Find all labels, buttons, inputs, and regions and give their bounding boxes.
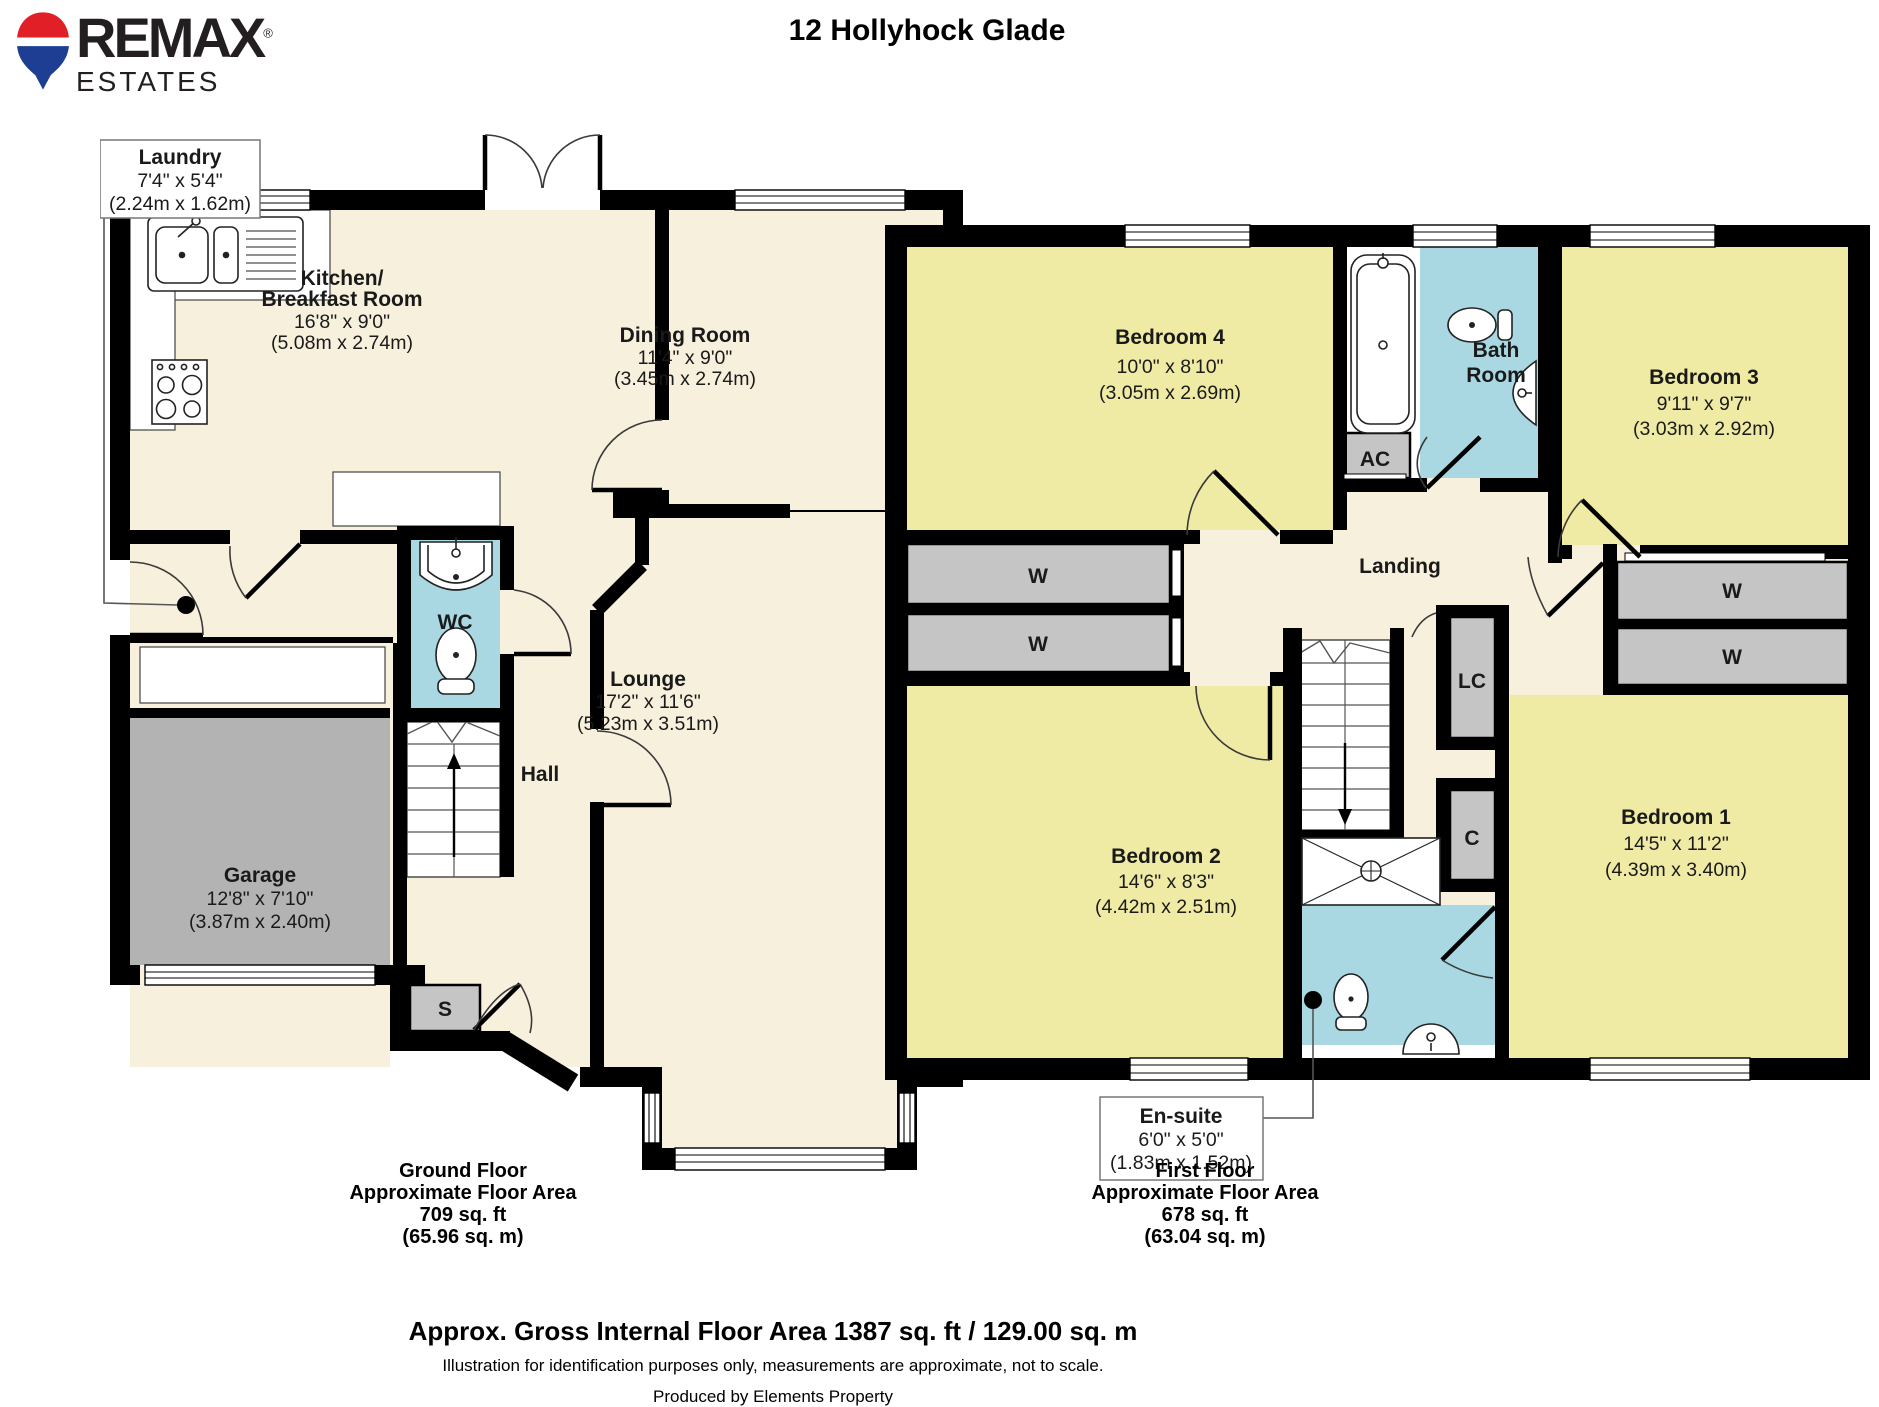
gf-bay-window xyxy=(675,1148,885,1170)
cupboard-c-label: C xyxy=(1464,827,1479,850)
landing-label: Landing xyxy=(1359,555,1441,578)
remax-logo: REMAX® ESTATES xyxy=(14,10,273,96)
gf-garage-door xyxy=(145,965,375,985)
gf-utility-counter xyxy=(140,647,385,703)
svg-text:(5.23m x 3.51m): (5.23m x 3.51m) xyxy=(577,713,719,735)
garage-label: Garage xyxy=(224,864,296,887)
wardrobe-label-1: W xyxy=(1028,565,1048,588)
laundry-metric: (2.24m x 1.62m) xyxy=(109,193,251,215)
ensuite-counter xyxy=(1302,1045,1495,1058)
svg-text:11'4" x 9'0": 11'4" x 9'0" xyxy=(638,347,733,369)
ff-bedroom2-floor xyxy=(907,686,1283,1058)
bedroom4-label: Bedroom 4 xyxy=(1115,326,1225,349)
floorplan-page: { "header": { "brand": "REMAX", "registe… xyxy=(0,0,1879,1400)
svg-text:(5.08m x 2.74m): (5.08m x 2.74m) xyxy=(271,332,413,354)
laundry-dims: 7'4" x 5'4" xyxy=(137,170,222,192)
ensuite-dims: 6'0" x 5'0" xyxy=(1138,1129,1223,1151)
wc-label: WC xyxy=(438,611,473,634)
svg-text:(3.87m x 2.40m): (3.87m x 2.40m) xyxy=(189,911,331,933)
ff-bathroom-floor xyxy=(1420,247,1538,478)
page-footer: Approx. Gross Internal Floor Area 1387 s… xyxy=(273,1316,1273,1407)
gf-stairs xyxy=(407,720,500,877)
bedroom2-label: Bedroom 2 xyxy=(1111,845,1221,868)
wc-basin-icon xyxy=(420,537,492,590)
ff-bedroom1-window xyxy=(1590,1058,1750,1080)
wc-toilet-icon xyxy=(436,628,476,694)
svg-text:12'8" x 7'10": 12'8" x 7'10" xyxy=(207,888,314,910)
gf-entrance-door-arc-right xyxy=(543,135,600,188)
svg-text:Breakfast Room: Breakfast Room xyxy=(261,288,422,311)
bedroom1-label: Bedroom 1 xyxy=(1621,806,1731,829)
svg-text:10'0" x 8'10": 10'0" x 8'10" xyxy=(1117,356,1224,378)
kitchen-hob-icon xyxy=(152,360,207,424)
svg-text:17'2" x 11'6": 17'2" x 11'6" xyxy=(595,691,701,713)
store-label: S xyxy=(438,998,452,1021)
lounge-label: Lounge xyxy=(610,668,686,691)
svg-text:(3.03m x 2.92m): (3.03m x 2.92m) xyxy=(1633,418,1775,440)
ensuite-name: En-suite xyxy=(1140,1105,1223,1128)
ensuite-leader-dot xyxy=(1304,991,1322,1009)
ground-floor-area-text: Ground Floor Approximate Floor Area 709 … xyxy=(263,1160,663,1248)
wardrobe-label-3: W xyxy=(1722,580,1742,603)
remax-balloon-icon xyxy=(14,10,72,92)
svg-text:14'5" x 11'2": 14'5" x 11'2" xyxy=(1623,833,1729,855)
brand-subtitle: ESTATES xyxy=(76,68,273,96)
svg-text:(4.39m x 3.40m): (4.39m x 3.40m) xyxy=(1605,859,1747,881)
hall-label: Hall xyxy=(521,763,560,786)
svg-text:(3.05m x 2.69m): (3.05m x 2.69m) xyxy=(1099,382,1241,404)
gf-bay-side-window-left xyxy=(644,1093,660,1143)
ff-bathroom-window xyxy=(1413,225,1497,247)
shower-icon xyxy=(1302,838,1440,905)
bedroom3-label: Bedroom 3 xyxy=(1649,366,1759,389)
ff-bedroom2-window xyxy=(1130,1058,1248,1080)
gross-area-text: Approx. Gross Internal Floor Area 1387 s… xyxy=(273,1316,1273,1347)
bathroom-toilet-icon xyxy=(1448,308,1512,342)
ff-bedroom3-window xyxy=(1590,225,1715,247)
linen-cupboard-label: LC xyxy=(1458,670,1486,693)
brand-name: REMAX® xyxy=(76,10,273,66)
svg-text:(3.45m x 2.74m): (3.45m x 2.74m) xyxy=(614,368,756,390)
credit-text: Produced by Elements Property xyxy=(273,1387,1273,1407)
airing-cupboard-label: AC xyxy=(1360,448,1390,471)
svg-text:9'11" x 9'7": 9'11" x 9'7" xyxy=(1657,393,1752,415)
first-floor-area-text: First Floor Approximate Floor Area 678 s… xyxy=(1005,1160,1405,1248)
page-title: 12 Hollyhock Glade xyxy=(627,14,1227,48)
svg-text:Room: Room xyxy=(1466,364,1526,387)
kitchen-sink-icon xyxy=(148,217,303,291)
gf-entrance-door-arc-left xyxy=(485,135,542,188)
wardrobe-label-2: W xyxy=(1028,633,1048,656)
disclaimer-text: Illustration for identification purposes… xyxy=(273,1356,1273,1376)
registered-mark: ® xyxy=(263,25,273,40)
ff-stairs xyxy=(1300,640,1390,830)
ff-bedroom4-window xyxy=(1125,225,1250,247)
kitchen-label: Kitchen/ xyxy=(301,267,384,290)
bathtub-icon xyxy=(1351,253,1415,433)
svg-text:(4.42m x 2.51m): (4.42m x 2.51m) xyxy=(1095,896,1237,918)
laundry-name: Laundry xyxy=(139,146,222,169)
svg-text:16'8" x 9'0": 16'8" x 9'0" xyxy=(294,311,390,333)
dining-label: Dining Room xyxy=(620,324,751,347)
svg-text:14'6" x 8'3": 14'6" x 8'3" xyxy=(1118,871,1214,893)
gf-bay-window-floor xyxy=(662,1067,897,1148)
ensuite-toilet-icon xyxy=(1334,974,1368,1030)
bathroom-label: Bath xyxy=(1473,339,1520,362)
first-floor-plan: En-suite 6'0" x 5'0" (1.83m x 1.52m) Bed… xyxy=(870,185,1879,1195)
laundry-leader-dot xyxy=(177,596,195,614)
wardrobe-label-4: W xyxy=(1722,646,1742,669)
ground-floor-plan: Laundry 7'4" x 5'4" (2.24m x 1.62m) Kitc… xyxy=(100,115,970,1175)
